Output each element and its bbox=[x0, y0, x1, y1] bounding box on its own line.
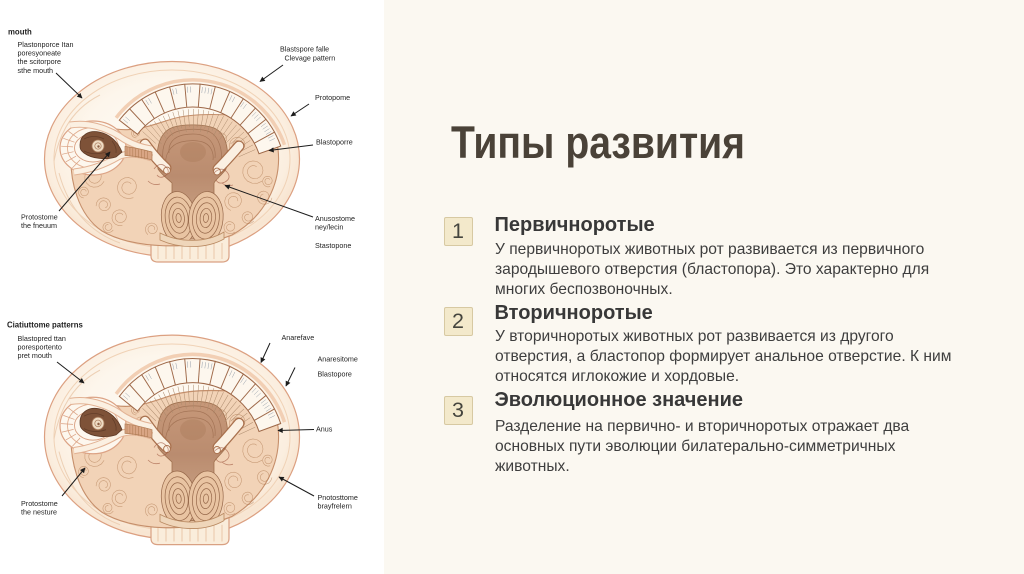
svg-text:sthe mouth: sthe mouth bbox=[18, 66, 54, 75]
svg-text:Ciatiuttome patterns: Ciatiuttome patterns bbox=[7, 321, 83, 330]
svg-text:mouth: mouth bbox=[8, 28, 32, 37]
svg-text:Anarefave: Anarefave bbox=[282, 333, 315, 342]
svg-text:Anaresitome: Anaresitome bbox=[318, 355, 358, 364]
svg-text:Blastopore: Blastopore bbox=[318, 370, 352, 379]
svg-text:Stastopone: Stastopone bbox=[315, 241, 351, 250]
svg-text:brayfrelern: brayfrelern bbox=[318, 502, 352, 511]
svg-text:Anus: Anus bbox=[316, 425, 333, 434]
svg-text:Clevage pattern: Clevage pattern bbox=[285, 54, 336, 63]
svg-text:pret mouth: pret mouth bbox=[18, 351, 52, 360]
svg-text:the fneuum: the fneuum bbox=[21, 221, 57, 230]
svg-text:Blastspore falle: Blastspore falle bbox=[280, 45, 329, 54]
svg-text:the nesture: the nesture bbox=[21, 508, 57, 517]
svg-text:ney/lecin: ney/lecin bbox=[315, 223, 343, 232]
svg-text:Blastoporre: Blastoporre bbox=[316, 138, 353, 147]
svg-text:Protopome: Protopome bbox=[315, 93, 350, 102]
